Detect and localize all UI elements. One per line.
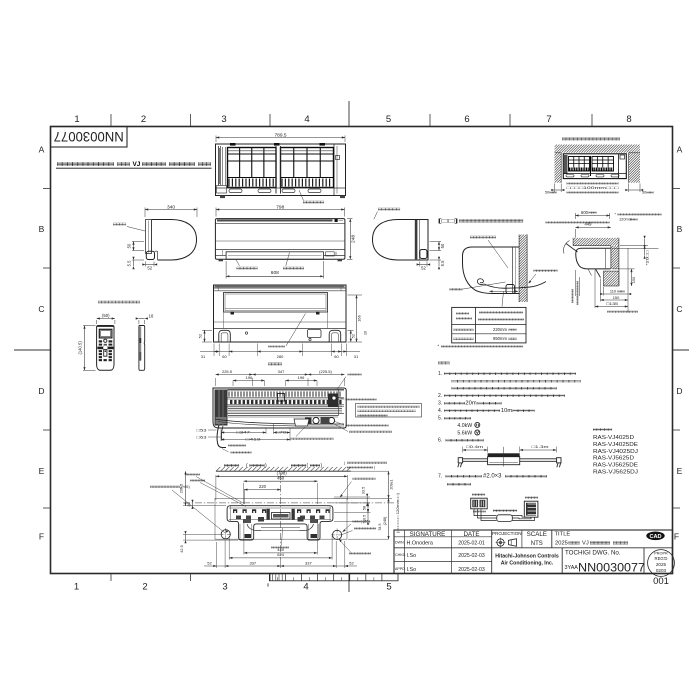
svg-text:2025: 2025	[656, 562, 667, 567]
svg-text:798: 798	[276, 204, 284, 210]
svg-text:10: 10	[364, 331, 368, 335]
svg-text:208±1: 208±1	[389, 479, 393, 489]
svg-text:2: 2	[141, 114, 146, 125]
svg-text:4: 4	[303, 582, 308, 593]
svg-text:□□□: □□□	[438, 361, 450, 367]
svg-text:SCALE: SCALE	[527, 531, 547, 538]
svg-text:(248): (248)	[383, 517, 387, 526]
svg-text:): )	[374, 466, 375, 470]
svg-text:5: 5	[386, 582, 391, 593]
svg-text:220mm: 220mm	[493, 327, 507, 332]
svg-text:1: 1	[74, 582, 79, 593]
svg-text:4.0kW: 4.0kW	[457, 423, 472, 429]
svg-text:4: 4	[304, 114, 309, 125]
svg-text:3YAA: 3YAA	[565, 565, 579, 571]
svg-text:CHKD.: CHKD.	[395, 553, 406, 557]
svg-text:2025-02-03: 2025-02-03	[458, 553, 485, 559]
svg-text:(225.5): (225.5)	[319, 369, 332, 374]
svg-text:NN0030077: NN0030077	[54, 128, 124, 144]
svg-text:6: 6	[464, 114, 469, 125]
svg-text:RAS-VJ4025DJ: RAS-VJ4025DJ	[593, 449, 638, 455]
svg-text:54.5: 54.5	[378, 524, 382, 531]
svg-text:42.5: 42.5	[180, 545, 184, 552]
svg-text:TITLE: TITLE	[555, 532, 571, 538]
svg-text:449: 449	[585, 222, 593, 227]
svg-text:□□□□: □□□□	[291, 463, 306, 469]
svg-text:58: 58	[362, 506, 366, 510]
svg-text:□63: □63	[197, 436, 207, 440]
svg-text:600: 600	[581, 210, 589, 215]
svg-text:0203: 0203	[656, 568, 667, 573]
svg-text:F: F	[39, 532, 44, 542]
svg-text:□□□□: □□□□	[250, 463, 265, 469]
svg-text:□□□: □□□	[589, 210, 598, 215]
svg-text:C: C	[38, 304, 44, 314]
svg-text:347: 347	[278, 369, 285, 374]
svg-text:I.So: I.So	[407, 567, 417, 573]
svg-text:5.: 5.	[438, 416, 442, 422]
svg-text:52: 52	[198, 334, 203, 338]
svg-text:5.6kW: 5.6kW	[457, 430, 472, 436]
svg-text:B: B	[677, 224, 683, 234]
svg-text:1.: 1.	[438, 371, 442, 377]
svg-text:624: 624	[277, 552, 284, 557]
svg-text:2025: 2025	[555, 541, 568, 547]
svg-text:*20□□: *20□□	[646, 249, 650, 265]
svg-text:1: 1	[74, 114, 79, 125]
svg-text:□□□□□□□□□□□□□□□□: □□□□□□□□□□□□□□□□	[459, 219, 524, 225]
svg-text:(140.5): (140.5)	[78, 341, 83, 355]
svg-text:F: F	[674, 532, 679, 542]
svg-text:248: 248	[351, 235, 357, 243]
svg-text:7: 7	[546, 114, 551, 125]
svg-text:4.: 4.	[438, 408, 442, 414]
svg-text:D: D	[676, 386, 682, 396]
svg-text:2: 2	[142, 582, 147, 593]
svg-text:VJ: VJ	[133, 161, 141, 168]
svg-text:20m: 20m	[465, 401, 476, 407]
svg-text:H.Onodera: H.Onodera	[407, 541, 433, 547]
svg-text:E: E	[39, 466, 45, 476]
svg-text:20: 20	[187, 502, 191, 506]
svg-text:□□□: □□□	[509, 336, 518, 341]
svg-text:52: 52	[349, 561, 354, 566]
svg-text:□□□□: □□□□	[613, 541, 629, 547]
svg-text:608: 608	[271, 270, 279, 276]
svg-text:C: C	[676, 304, 682, 314]
svg-text:6.: 6.	[438, 438, 442, 444]
svg-text:10m: 10m	[501, 408, 512, 414]
svg-text:3.: 3.	[438, 401, 442, 407]
svg-text:50: 50	[127, 243, 132, 248]
svg-text:450: 450	[277, 476, 285, 481]
svg-text:(50): (50)	[102, 313, 110, 318]
svg-text:Air Conditioning, Inc.: Air Conditioning, Inc.	[501, 561, 554, 567]
svg-text:5.5: 5.5	[127, 260, 132, 266]
svg-text:337: 337	[305, 560, 312, 565]
svg-text:□□□: □□□	[509, 327, 518, 332]
svg-text:220: 220	[259, 484, 267, 489]
svg-text:3: 3	[221, 114, 226, 125]
svg-text:196: 196	[298, 375, 305, 380]
svg-text:52: 52	[421, 266, 426, 271]
svg-text:5: 5	[386, 114, 391, 125]
svg-text:RAS-VJ5625DE: RAS-VJ5625DE	[593, 463, 639, 469]
svg-text:60: 60	[222, 354, 227, 359]
svg-text:110: 110	[610, 288, 617, 293]
svg-text:A: A	[677, 145, 683, 155]
svg-text:NN0030077: NN0030077	[578, 561, 645, 575]
svg-text:□1.3m: □1.3m	[532, 444, 550, 449]
svg-text:□□□□□□□□: □□□□□□□□	[534, 268, 559, 273]
svg-text:5.5: 5.5	[440, 260, 445, 266]
svg-text:3: 3	[222, 582, 227, 593]
svg-text:196: 196	[246, 375, 253, 380]
svg-text:52: 52	[207, 561, 212, 566]
svg-text:001: 001	[653, 576, 669, 587]
svg-text:205.5: 205.5	[180, 484, 184, 494]
svg-text:□□□□□: □□□□□	[590, 541, 611, 547]
svg-text:33.5: 33.5	[362, 487, 366, 494]
svg-text:#2.0×3: #2.0×3	[483, 474, 502, 480]
svg-text:□53: □53	[197, 429, 207, 433]
svg-text:RAS-VJ5625D: RAS-VJ5625D	[593, 456, 634, 462]
svg-text:950mm: 950mm	[493, 336, 507, 341]
svg-text:APPD.: APPD.	[395, 567, 406, 571]
svg-text:RAS-VJ4025D: RAS-VJ4025D	[593, 435, 634, 441]
svg-text:225.5: 225.5	[222, 369, 233, 374]
svg-text:DATE: DATE	[463, 531, 479, 538]
svg-text:PROJECTION: PROJECTION	[492, 531, 522, 536]
svg-text:SIGNATURE: SIGNATURE	[410, 531, 446, 538]
svg-text:TOCHIGI DWG. No.: TOCHIGI DWG. No.	[565, 550, 621, 557]
svg-text:A: A	[39, 145, 45, 155]
svg-text:DWN.: DWN.	[395, 541, 405, 545]
svg-text:Hitachi-Johnson Controls: Hitachi-Johnson Controls	[495, 554, 559, 560]
svg-text:-16.5: -16.5	[362, 515, 366, 523]
svg-text:CAD: CAD	[649, 534, 661, 540]
svg-text:52: 52	[350, 334, 355, 338]
svg-text:340: 340	[167, 204, 175, 210]
svg-text:NTS: NTS	[531, 541, 543, 547]
svg-text:B: B	[39, 224, 45, 234]
svg-text:150: 150	[613, 295, 620, 300]
svg-text:RAS-VJ4025DE: RAS-VJ4025DE	[593, 442, 639, 448]
svg-text:280: 280	[277, 354, 284, 359]
svg-text:60: 60	[334, 354, 339, 359]
svg-text:(□□□□□□ 120mm□□): (□□□□□□ 120mm□□)	[396, 493, 400, 533]
svg-text:REG'D: REG'D	[655, 556, 668, 561]
svg-text:□□□□: □□□□	[268, 363, 282, 368]
svg-text:166: 166	[357, 315, 362, 322]
svg-text:□135: □135	[606, 301, 618, 306]
svg-text:50: 50	[440, 243, 445, 248]
svg-text:7.: 7.	[438, 474, 442, 480]
svg-text:[□□]: [□□]	[438, 219, 459, 225]
svg-text:18: 18	[149, 313, 154, 318]
svg-text:RAS-VJ5625DJ: RAS-VJ5625DJ	[593, 470, 638, 476]
svg-text:31: 31	[201, 354, 206, 359]
svg-text:□□□□100mm□□□: □□□□100mm□□□	[567, 186, 621, 190]
svg-text:31: 31	[354, 354, 359, 359]
svg-text:789.5: 789.5	[274, 132, 286, 138]
svg-text:□□□: □□□	[569, 541, 581, 547]
svg-text:150: 150	[631, 276, 636, 283]
svg-text:52: 52	[147, 266, 152, 271]
svg-text:VJ: VJ	[582, 541, 589, 547]
svg-text:2.: 2.	[438, 393, 442, 399]
svg-text:□0.4m: □0.4m	[466, 444, 484, 449]
svg-text:E: E	[677, 466, 683, 476]
svg-text:337: 337	[249, 560, 256, 565]
svg-text:□□□□□□□□□□□□□□□: □□□□□□□□□□□□□□□	[562, 137, 620, 143]
svg-text:D: D	[38, 386, 44, 396]
svg-text:I.So: I.So	[407, 553, 417, 559]
svg-text:2025-02-03: 2025-02-03	[458, 567, 485, 573]
svg-text:8: 8	[626, 114, 631, 125]
svg-text:2025-02-01: 2025-02-01	[458, 541, 485, 547]
